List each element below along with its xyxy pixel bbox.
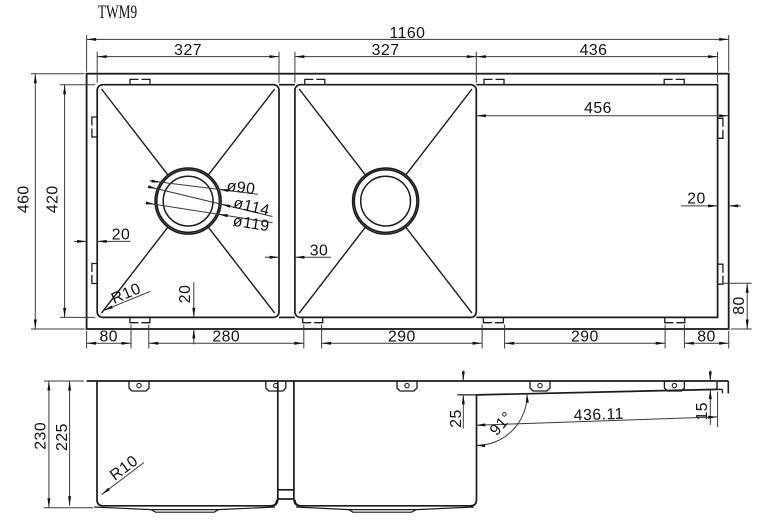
svg-text:327: 327 (174, 42, 202, 59)
svg-text:230: 230 (32, 422, 49, 450)
svg-text:20: 20 (112, 227, 131, 244)
svg-text:460: 460 (15, 185, 32, 213)
svg-text:436: 436 (580, 42, 608, 59)
svg-text:TWM9: TWM9 (98, 1, 137, 23)
svg-text:80: 80 (697, 328, 716, 345)
svg-text:280: 280 (212, 328, 240, 345)
svg-text:290: 290 (571, 328, 599, 345)
svg-text:30: 30 (310, 243, 329, 260)
svg-text:20: 20 (687, 191, 706, 208)
svg-text:436.11: 436.11 (573, 406, 624, 425)
svg-text:20: 20 (177, 285, 194, 304)
svg-text:80: 80 (100, 328, 119, 345)
svg-text:420: 420 (44, 185, 61, 213)
svg-text:456: 456 (584, 100, 612, 117)
svg-text:80: 80 (731, 296, 748, 315)
svg-text:225: 225 (54, 423, 71, 451)
svg-text:1160: 1160 (390, 25, 426, 42)
svg-text:327: 327 (372, 42, 400, 59)
svg-text:290: 290 (388, 328, 416, 345)
svg-text:25: 25 (448, 409, 465, 428)
